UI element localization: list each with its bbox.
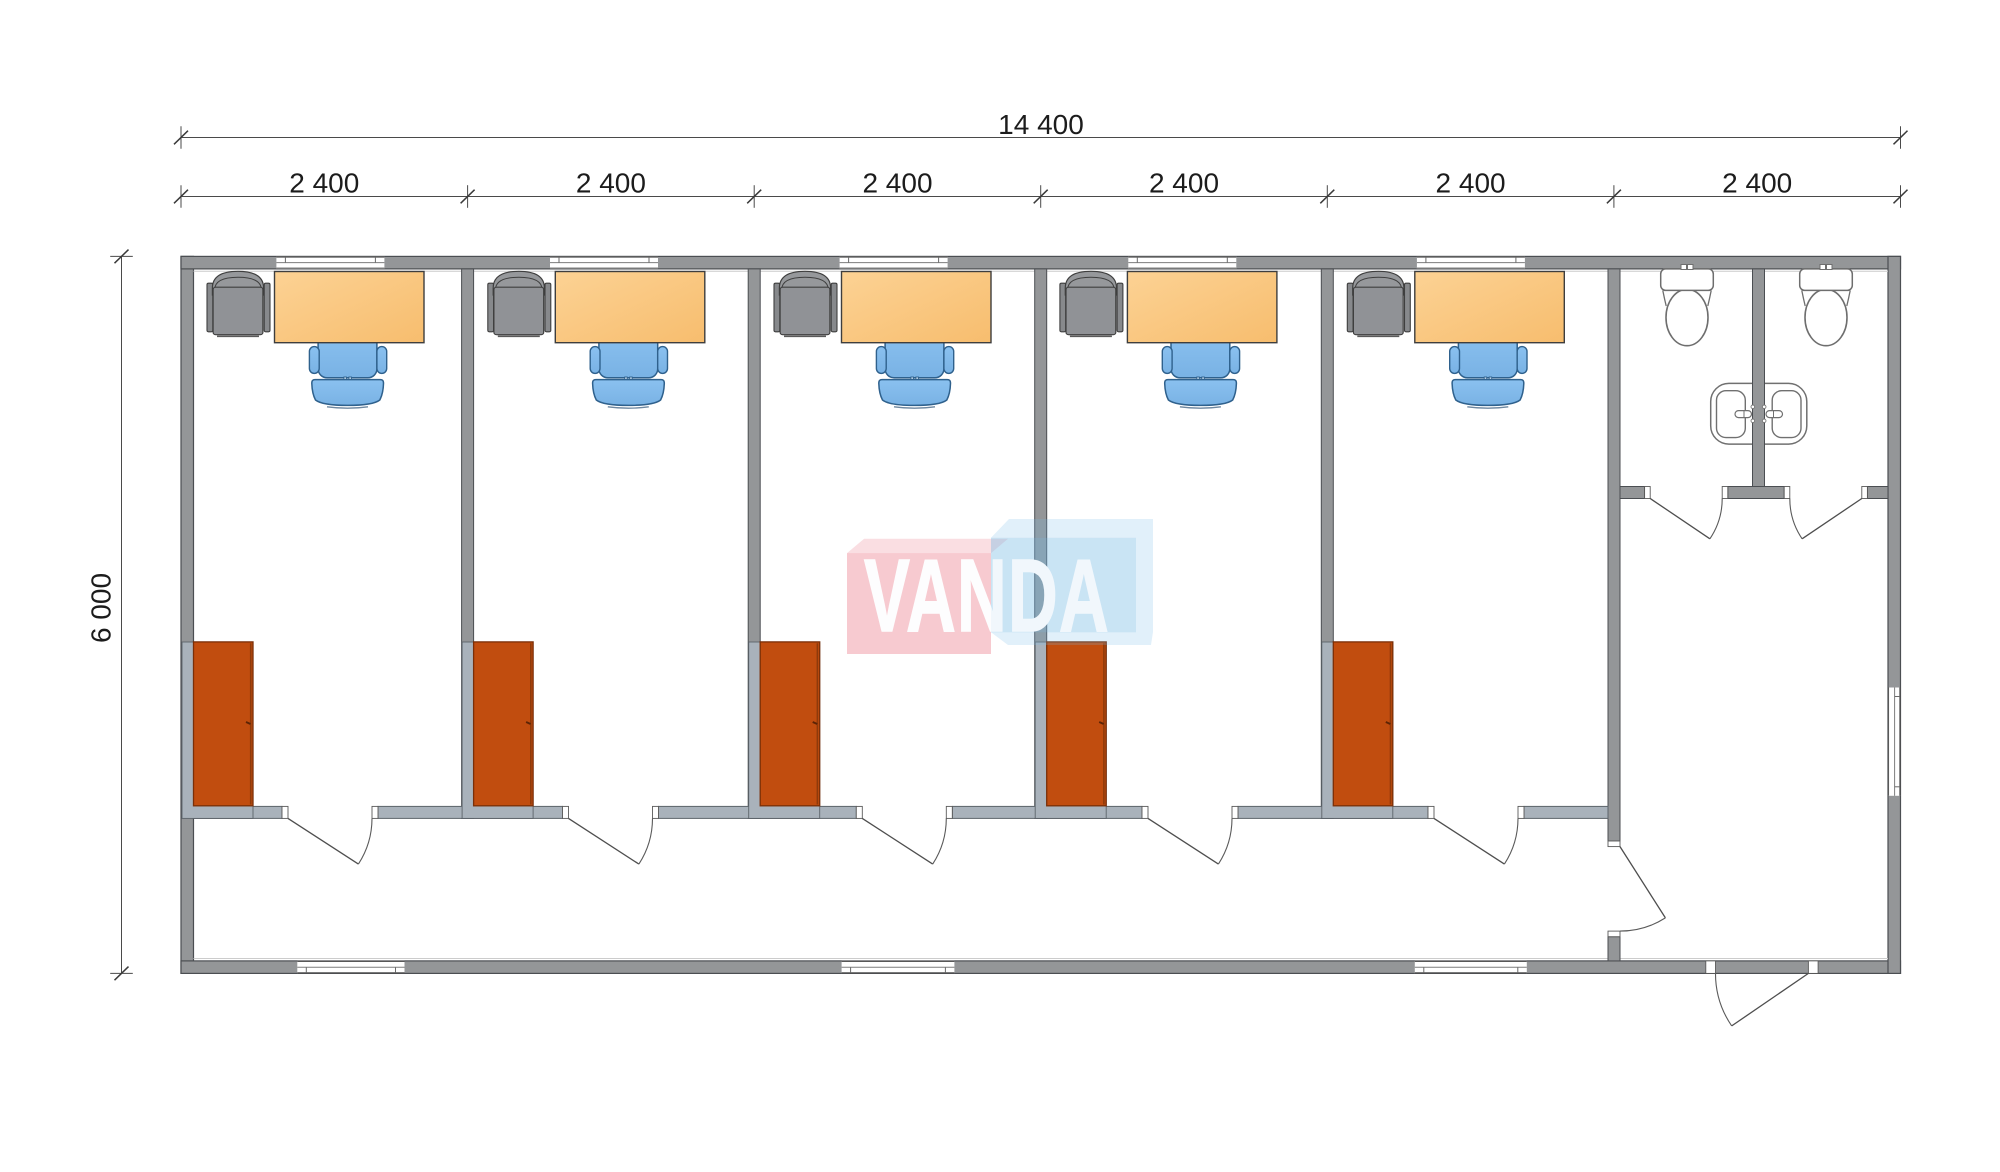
- svg-text:2 400: 2 400: [1436, 168, 1506, 199]
- svg-text:6 000: 6 000: [86, 573, 117, 643]
- svg-text:2 400: 2 400: [576, 168, 646, 199]
- svg-text:2 400: 2 400: [289, 168, 359, 199]
- svg-text:2 400: 2 400: [1149, 168, 1219, 199]
- svg-text:2 400: 2 400: [1722, 168, 1792, 199]
- svg-text:14 400: 14 400: [998, 109, 1084, 140]
- svg-text:2 400: 2 400: [862, 168, 932, 199]
